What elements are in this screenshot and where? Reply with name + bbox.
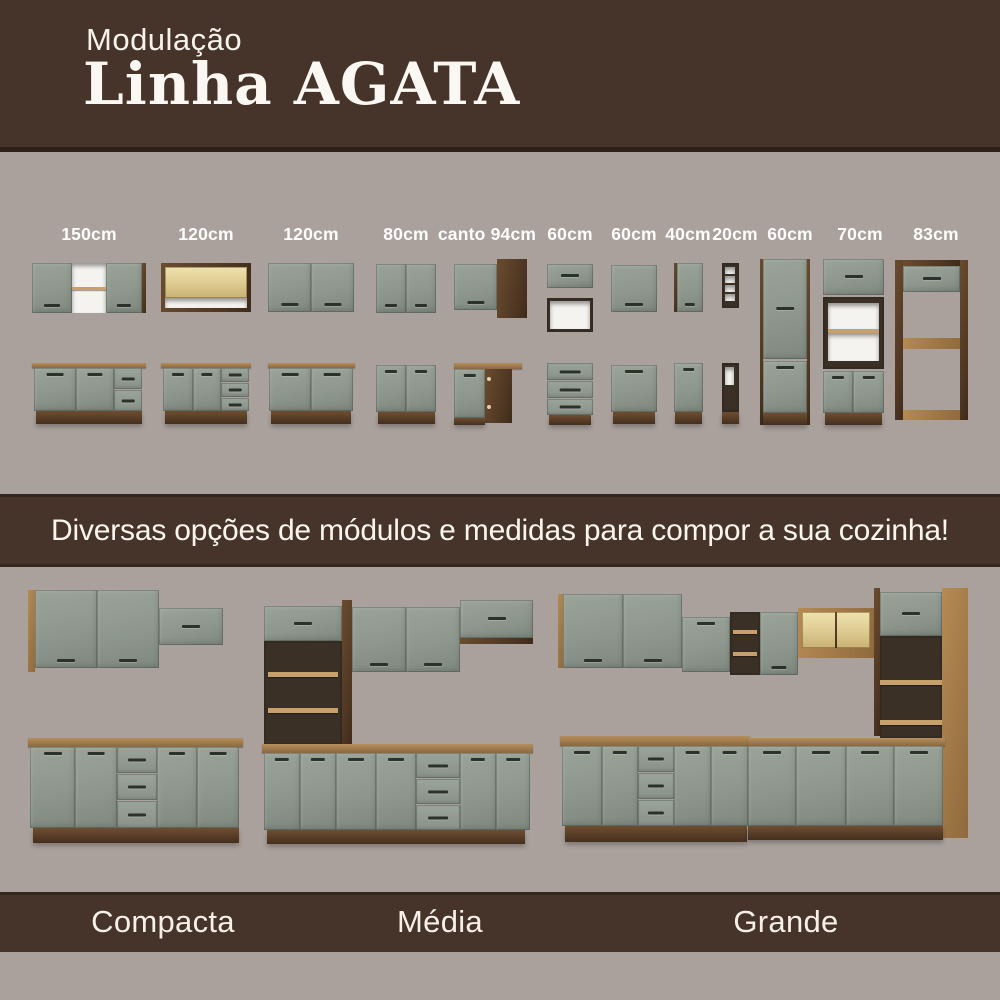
cabinet-door [311,263,354,312]
drawer [117,774,157,800]
kitchen-grande [555,560,990,860]
cabinet-door [376,264,406,313]
cabinet-door [760,612,798,675]
cabinet-door [406,365,436,412]
open-niche [165,298,247,308]
tower-door [264,606,342,641]
module-70cm-tall [823,255,884,430]
tower-door [880,592,942,636]
flap-door [159,608,223,645]
kitchen-compacta [25,560,247,860]
footer-bar: Compacta Média Grande [0,892,1000,952]
drawer [221,368,249,382]
cabinet-door [35,590,97,668]
shelf-opening [725,367,734,385]
wood-base [613,412,655,424]
cabinet-door [823,259,884,295]
drawer [117,747,157,773]
cabinet-door [460,753,496,830]
wood-base [825,413,882,425]
cabinet-door [562,746,602,826]
shelf-opening [725,294,735,301]
wood-base [549,415,591,425]
cabinet-door [311,368,353,411]
tower-niches [264,641,342,745]
cabinet-door [352,607,406,672]
drawer [114,390,142,411]
shelf [880,720,942,725]
drawer [547,381,593,398]
wood-base [763,413,807,425]
drawer [221,383,249,397]
cabinet-door [300,753,336,830]
kitchen-media [262,560,535,860]
wood-base [267,830,525,844]
shelf [268,672,338,677]
cabinet-door [106,263,142,313]
cabinet-door [682,617,730,672]
cabinet-door [197,747,239,828]
banner-text: Diversas opções de módulos e medidas par… [51,514,949,548]
cabinet-door [76,368,114,411]
module-83cm-tall [895,255,968,430]
cabinet-door [406,264,436,313]
cabinet-door [823,371,853,413]
module-150cm [32,255,146,430]
shelf-opening [725,285,735,292]
cabinet-door [711,746,748,826]
shelf [268,708,338,713]
flap-door [547,264,593,288]
corner-wood-panel [497,259,527,318]
cabinet-door [623,594,682,668]
shelf [733,652,757,656]
cabinet-door [796,746,846,826]
drawer [114,368,142,389]
drawer [416,753,460,778]
drawer [638,800,674,826]
header: Modulação Linha AGATA [0,0,1000,152]
wood-panel [895,260,903,420]
cabinet-door [157,747,197,828]
cabinet-door [611,265,657,312]
drawer [638,773,674,799]
module-120cm [268,255,355,430]
drawer [117,801,157,828]
glass-divider [835,612,837,648]
cabinet-door [268,263,311,312]
cabinet-door [269,368,311,411]
wood-panel [142,263,146,313]
open-niche [828,303,879,329]
cabinet-door [846,746,894,826]
open-niche [828,333,879,361]
wood-base [165,411,247,424]
shelf-opening [725,276,735,283]
module-size-label: 120cm [146,222,266,246]
wood-base [271,411,351,424]
wood-base [36,411,142,424]
counter-top [262,744,533,753]
module-20cm [722,255,739,430]
wood-base [903,410,960,420]
drawer [638,746,674,772]
shelf [880,680,942,685]
corner-shelves [730,612,760,675]
cabinet-door [763,259,807,359]
module-60cm-tall [760,255,810,430]
open-niche [550,301,590,329]
wood-panel [960,260,968,420]
cabinet-door [677,263,703,312]
drawer [547,363,593,380]
cabinet-door [75,747,117,828]
counter-top [28,738,243,747]
wood-edge [28,590,35,672]
cabinet-door [611,365,657,412]
hinge [487,377,491,381]
cabinet-door [674,746,711,826]
module-120cm-glass [161,255,251,430]
footer-label-compacta: Compacta [63,892,263,952]
wood-base [565,826,747,842]
wood-panel [342,600,352,745]
module-size-label: 150cm [29,222,149,246]
shelf [733,630,757,634]
module-60cm [611,255,657,430]
cabinet-door [894,746,943,826]
drawer [416,805,460,830]
shelf [72,287,106,290]
module-canto-94cm [454,255,540,430]
footer-label-media: Média [340,892,540,952]
cabinet-door [406,607,460,672]
cabinet-door [30,747,75,828]
cabinet-door [602,746,638,826]
cabinet-door [563,594,623,668]
drawer [221,398,249,411]
hinge [487,405,491,409]
cabinet-door [193,368,221,411]
cabinet-door [32,263,72,313]
glass-doors [165,267,247,298]
wood-panel [807,259,810,425]
module-60cm-niche [547,255,593,430]
banner: Diversas opções de módulos e medidas par… [0,494,1000,567]
wood-base [748,826,943,840]
wood-panel [460,638,533,644]
wood-base [722,412,739,424]
module-size-label: 83cm [876,222,996,246]
wood-base [378,412,435,424]
drawer [416,779,460,804]
cabinet-door [454,369,485,418]
module-40cm [674,255,703,430]
cabinet-door [763,361,807,413]
cabinet-door [264,753,300,830]
cabinet-door [34,368,76,411]
drawer [547,399,593,415]
counter-top [748,738,945,746]
cabinet-door [674,363,703,412]
cabinet-door [853,371,884,413]
flap-door [460,600,533,638]
cabinet-door [496,753,530,830]
cabinet-door [376,753,416,830]
wood-base [675,412,702,424]
cabinet-door [336,753,376,830]
cabinet-door [454,264,497,310]
shelf [903,338,960,349]
cabinet-door [163,368,193,411]
wood-base [454,418,485,425]
wood-base [33,828,239,843]
tower-side-panel [942,588,968,838]
cabinet-door [903,266,960,292]
module-80cm [376,255,437,430]
cabinet-door [97,590,159,668]
footer-label-grande: Grande [686,892,886,952]
poster: Modulação Linha AGATA 150cm 120cm 120cm … [0,0,1000,1000]
shelf-opening [725,267,735,274]
page-title: Linha AGATA [83,50,520,118]
cabinet-door [748,746,796,826]
cabinet-door [376,365,406,412]
counter-top [560,736,750,746]
